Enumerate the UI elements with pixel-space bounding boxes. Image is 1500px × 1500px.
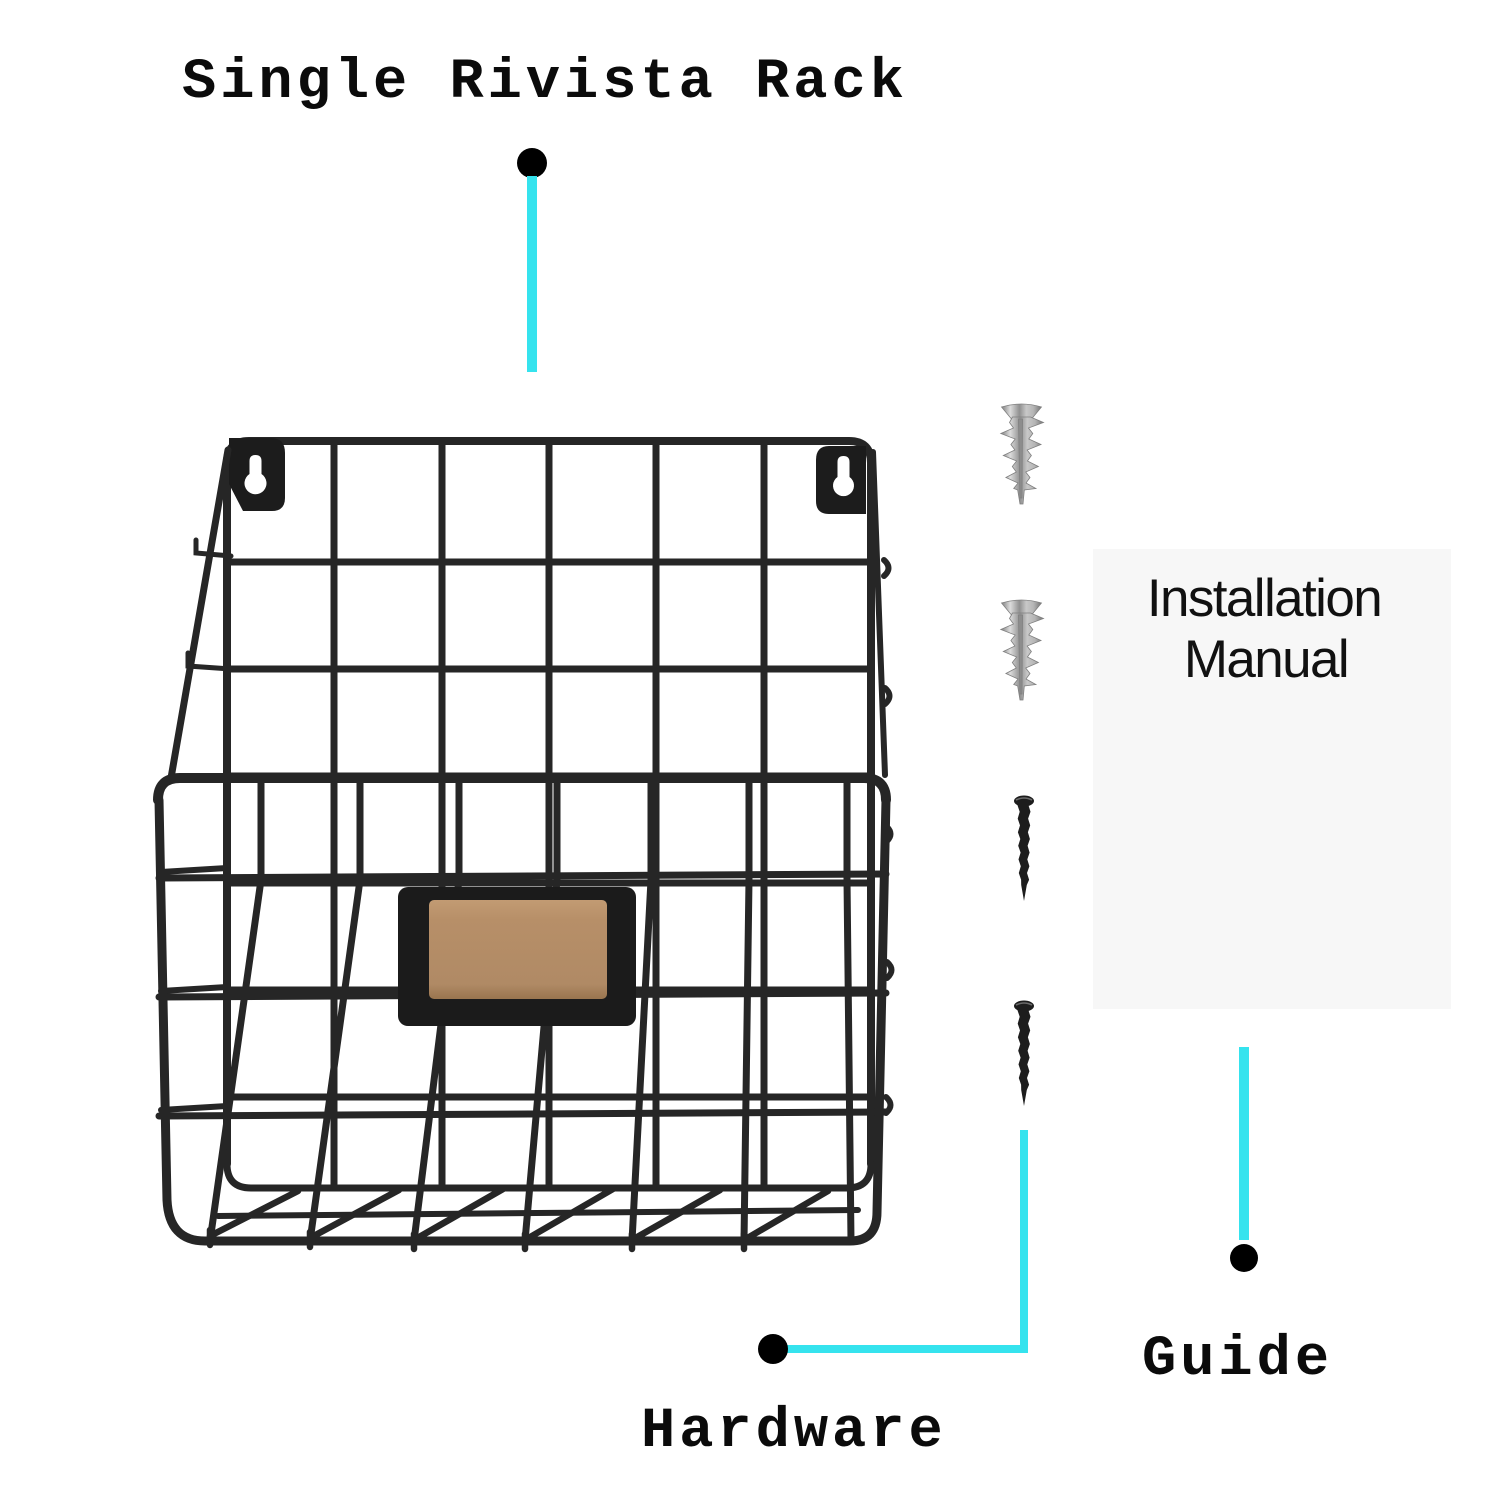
svg-text:Manual: Manual [1184,630,1348,689]
svg-text:Installation: Installation [1147,569,1381,628]
svg-text:Hardware: Hardware [641,1400,947,1464]
svg-text:Guide: Guide [1142,1328,1333,1392]
svg-text:Single Rivista Rack: Single Rivista Rack [182,51,908,115]
